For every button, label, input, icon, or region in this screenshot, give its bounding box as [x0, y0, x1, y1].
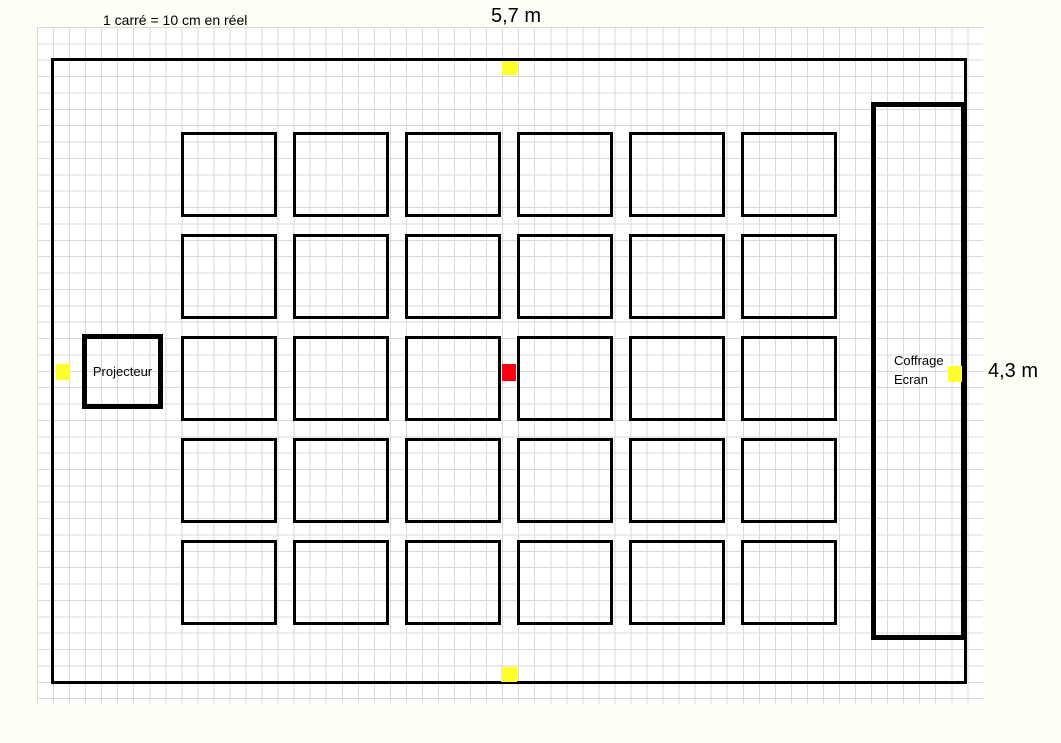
desk-r4-c4[interactable]	[517, 438, 613, 523]
desk-r2-c6[interactable]	[741, 234, 837, 319]
midpoint-marker-bottom[interactable]	[501, 667, 517, 682]
desk-r5-c1[interactable]	[181, 540, 277, 625]
screen-label-line2: Ecran	[894, 371, 944, 390]
midpoint-marker-top[interactable]	[502, 61, 517, 75]
desk-r3-c6[interactable]	[741, 336, 837, 421]
desk-r5-c3[interactable]	[405, 540, 501, 625]
desk-r1-c4[interactable]	[517, 132, 613, 217]
desk-r1-c5[interactable]	[629, 132, 725, 217]
desk-r1-c1[interactable]	[181, 132, 277, 217]
desk-r2-c1[interactable]	[181, 234, 277, 319]
desk-r4-c5[interactable]	[629, 438, 725, 523]
desk-r4-c2[interactable]	[293, 438, 389, 523]
room-center-marker[interactable]	[502, 364, 516, 381]
desk-r4-c6[interactable]	[741, 438, 837, 523]
desk-r2-c5[interactable]	[629, 234, 725, 319]
desk-r5-c4[interactable]	[517, 540, 613, 625]
screen-label: Coffrage Ecran	[894, 352, 944, 389]
projector-label: Projecteur	[93, 364, 152, 379]
projector-box[interactable]: Projecteur	[82, 334, 163, 409]
desk-r2-c2[interactable]	[293, 234, 389, 319]
desk-r2-c4[interactable]	[517, 234, 613, 319]
desk-r3-c4[interactable]	[517, 336, 613, 421]
desk-r1-c6[interactable]	[741, 132, 837, 217]
desk-r3-c3[interactable]	[405, 336, 501, 421]
screen-label-line1: Coffrage	[894, 352, 944, 371]
desk-r1-c3[interactable]	[405, 132, 501, 217]
desk-r2-c3[interactable]	[405, 234, 501, 319]
desk-r5-c6[interactable]	[741, 540, 837, 625]
desk-r4-c3[interactable]	[405, 438, 501, 523]
desk-r5-c2[interactable]	[293, 540, 389, 625]
midpoint-marker-left[interactable]	[56, 364, 70, 380]
desk-r4-c1[interactable]	[181, 438, 277, 523]
desk-r3-c5[interactable]	[629, 336, 725, 421]
desk-r1-c2[interactable]	[293, 132, 389, 217]
desk-r3-c2[interactable]	[293, 336, 389, 421]
midpoint-marker-right[interactable]	[948, 366, 962, 382]
floor-plan-canvas: 1 carré = 10 cm en réel 5,7 m 4,3 m Proj…	[0, 0, 1061, 743]
desk-r5-c5[interactable]	[629, 540, 725, 625]
desk-r3-c1[interactable]	[181, 336, 277, 421]
